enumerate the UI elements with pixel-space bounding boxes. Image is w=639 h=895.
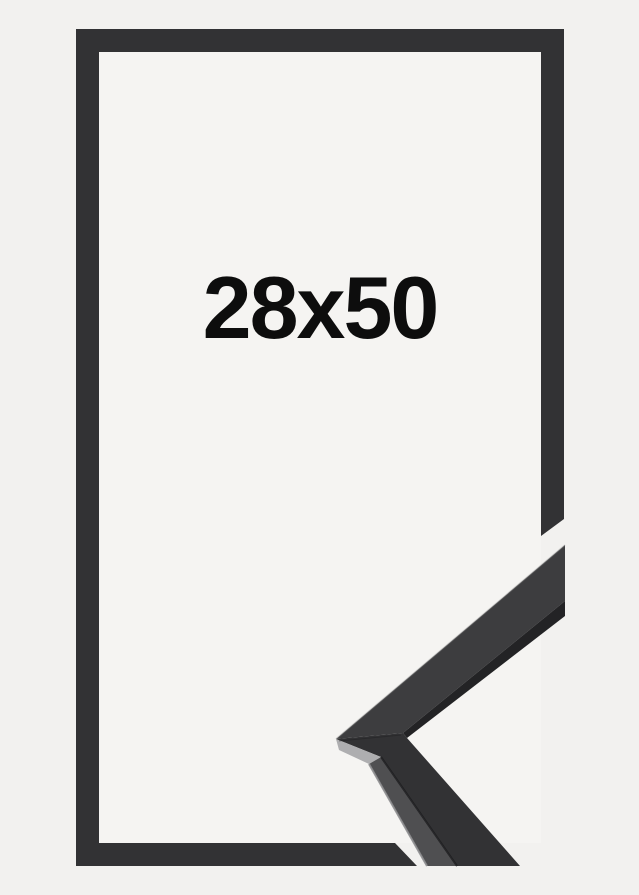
frame-bar-top xyxy=(76,29,564,52)
frame-bar-left xyxy=(76,29,99,866)
frame-illustration xyxy=(0,0,639,895)
size-label: 28x50 xyxy=(99,264,541,352)
product-photo: 28x50 xyxy=(0,0,639,895)
frame-interior xyxy=(99,52,541,843)
frame-bar-right-cut xyxy=(541,29,564,536)
frame-bar-bottom-cut xyxy=(76,843,417,866)
